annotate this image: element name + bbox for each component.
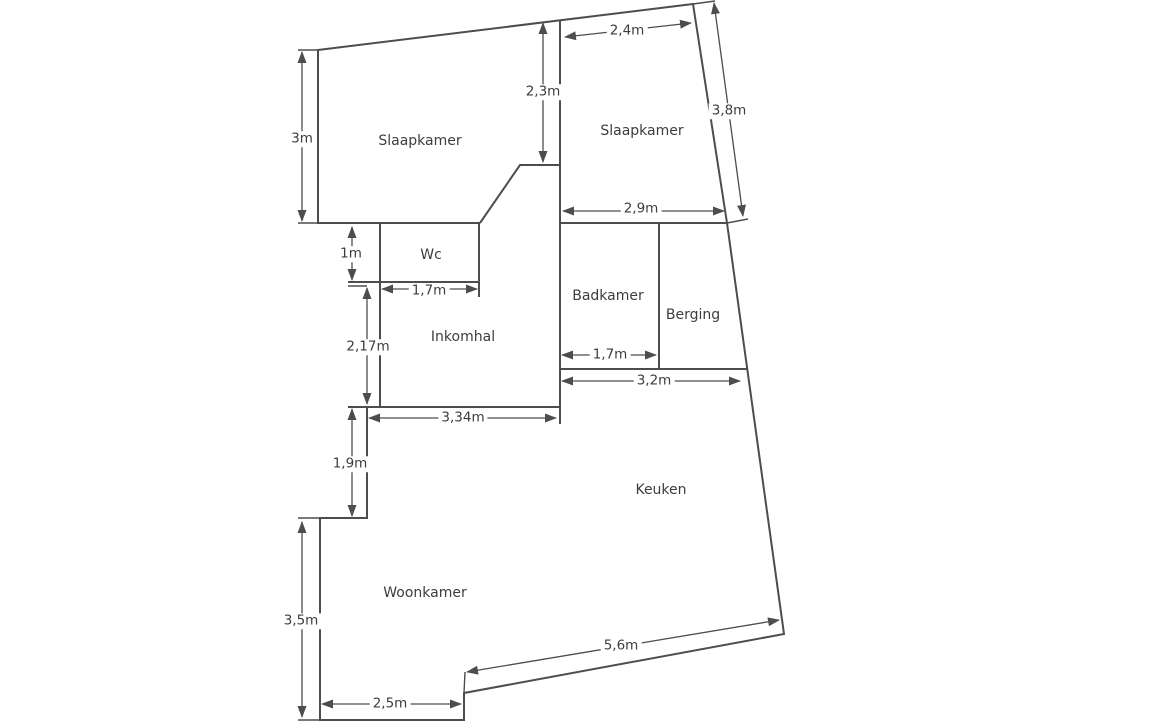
dim-label-1-7m-badkamer: 1,7m: [590, 347, 631, 363]
dim-label-2-9m: 2,9m: [621, 201, 662, 217]
tick-5-6m-left: [464, 672, 465, 693]
dim-label-3m: 3m: [288, 131, 316, 147]
dim-label-3-2m: 3,2m: [634, 373, 675, 389]
tick-3-8m-bottom: [727, 219, 748, 223]
dim-label-1m: 1m: [337, 246, 365, 262]
floor-plan-drawing: [0, 0, 1152, 727]
dim-label-3-8m: 3,8m: [709, 103, 750, 119]
dim-label-5-6m: 5,6m: [601, 638, 642, 654]
dim-label-2-5m: 2,5m: [370, 696, 411, 712]
tick-3-8m-top: [693, 1, 715, 4]
room-label-slaapkamer-right: Slaapkamer: [600, 124, 683, 138]
room-label-badkamer: Badkamer: [572, 289, 644, 303]
dim-label-1-7m-wc: 1,7m: [409, 283, 450, 299]
room-label-wc: Wc: [420, 248, 442, 262]
room-label-keuken: Keuken: [635, 483, 686, 497]
dim-label-2-17m: 2,17m: [343, 339, 392, 355]
dim-label-1-9m: 1,9m: [330, 456, 371, 472]
room-label-woonkamer: Woonkamer: [383, 586, 466, 600]
room-label-slaapkamer-left: Slaapkamer: [378, 134, 461, 148]
dim-label-2-3m: 2,3m: [523, 84, 564, 100]
dim-label-3-5m: 3,5m: [281, 613, 322, 629]
dim-label-3-34m: 3,34m: [438, 410, 487, 426]
room-label-berging: Berging: [666, 308, 720, 322]
room-label-inkomhal: Inkomhal: [431, 330, 495, 344]
floor-plan: Slaapkamer Slaapkamer Wc Inkomhal Badkam…: [0, 0, 1152, 727]
dim-label-2-4m: 2,4m: [607, 23, 648, 39]
